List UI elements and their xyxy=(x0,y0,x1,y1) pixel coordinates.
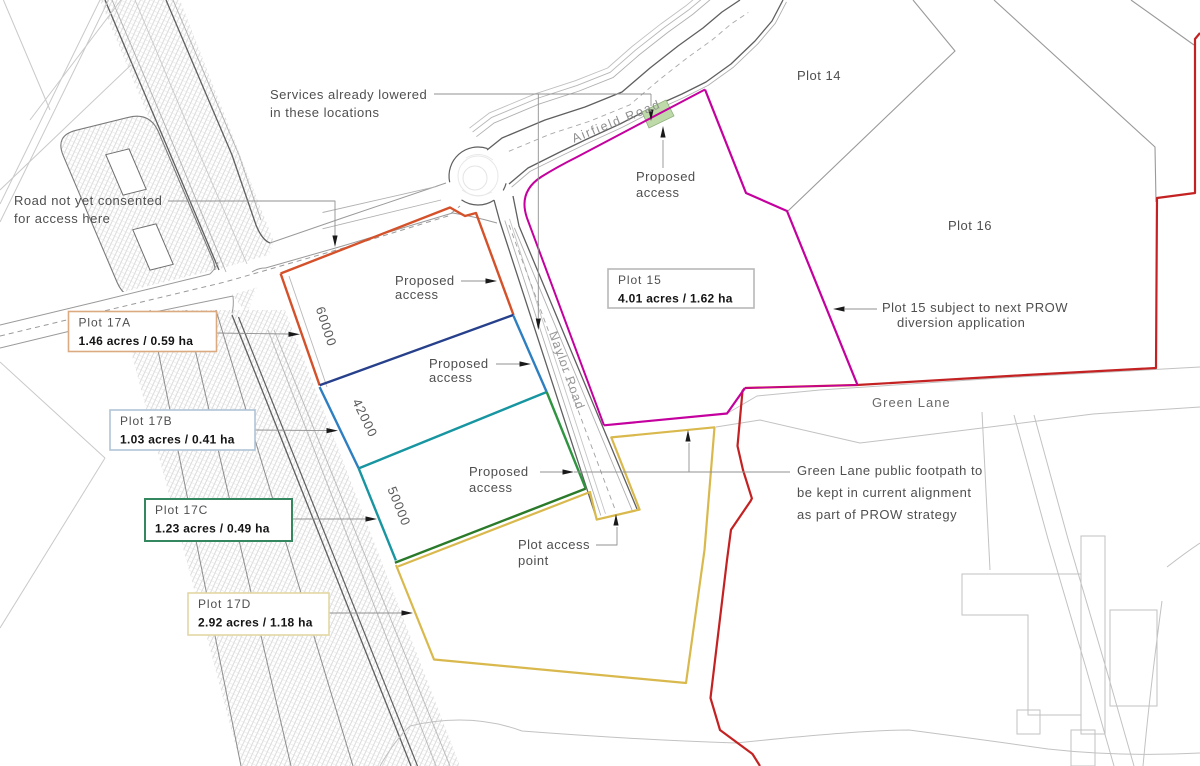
svg-text:access: access xyxy=(469,480,512,495)
svg-text:point: point xyxy=(518,553,549,568)
svg-text:Plot 17C: Plot 17C xyxy=(155,503,208,517)
svg-text:be kept in current alignment: be kept in current alignment xyxy=(797,485,971,500)
svg-text:Plot 16: Plot 16 xyxy=(948,218,992,233)
svg-text:4.01 acres / 1.62 ha: 4.01 acres / 1.62 ha xyxy=(618,292,733,306)
svg-text:2.92 acres / 1.18 ha: 2.92 acres / 1.18 ha xyxy=(198,616,313,630)
svg-text:Green Lane public footpath to: Green Lane public footpath to xyxy=(797,463,983,478)
svg-text:Services already lowered: Services already lowered xyxy=(270,87,427,102)
svg-text:access: access xyxy=(395,287,438,302)
svg-text:for access here: for access here xyxy=(14,211,110,226)
svg-text:Plot 15 subject to next PROW: Plot 15 subject to next PROW xyxy=(882,300,1068,315)
svg-text:Proposed: Proposed xyxy=(395,273,455,288)
svg-text:as part of PROW strategy: as part of PROW strategy xyxy=(797,507,957,522)
svg-text:Plot 17A: Plot 17A xyxy=(79,316,132,330)
svg-text:access: access xyxy=(429,370,472,385)
svg-text:Proposed: Proposed xyxy=(636,169,696,184)
svg-text:1.23 acres / 0.49 ha: 1.23 acres / 0.49 ha xyxy=(155,522,270,536)
svg-text:Plot 17D: Plot 17D xyxy=(198,597,251,611)
svg-text:Road not yet consented: Road not yet consented xyxy=(14,193,162,208)
svg-text:in these locations: in these locations xyxy=(270,105,379,120)
svg-text:Proposed: Proposed xyxy=(469,464,529,479)
svg-text:access: access xyxy=(636,185,679,200)
svg-text:Plot 17B: Plot 17B xyxy=(120,414,173,428)
svg-text:Proposed: Proposed xyxy=(429,356,489,371)
svg-text:Plot 14: Plot 14 xyxy=(797,68,841,83)
svg-text:1.46 acres / 0.59 ha: 1.46 acres / 0.59 ha xyxy=(79,334,194,348)
svg-text:Plot access: Plot access xyxy=(518,537,590,552)
svg-text:1.03 acres / 0.41 ha: 1.03 acres / 0.41 ha xyxy=(120,433,235,447)
svg-text:Green Lane: Green Lane xyxy=(872,395,951,410)
svg-text:Plot 15: Plot 15 xyxy=(618,273,662,287)
svg-text:diversion application: diversion application xyxy=(897,315,1025,330)
